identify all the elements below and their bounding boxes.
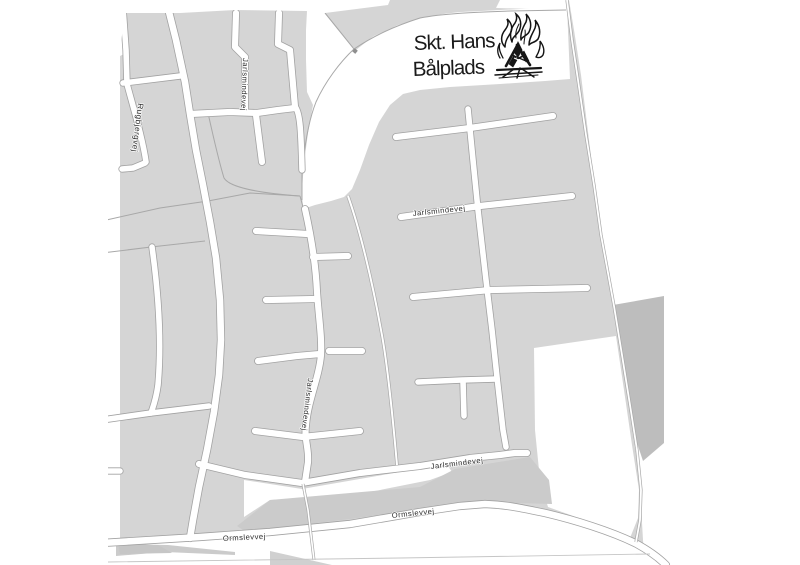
svg-text:Jarlsmindevej: Jarlsmindevej <box>239 58 250 111</box>
svg-text:Skt. Hans: Skt. Hans <box>413 29 495 55</box>
svg-text:Bålplads: Bålplads <box>412 55 485 81</box>
